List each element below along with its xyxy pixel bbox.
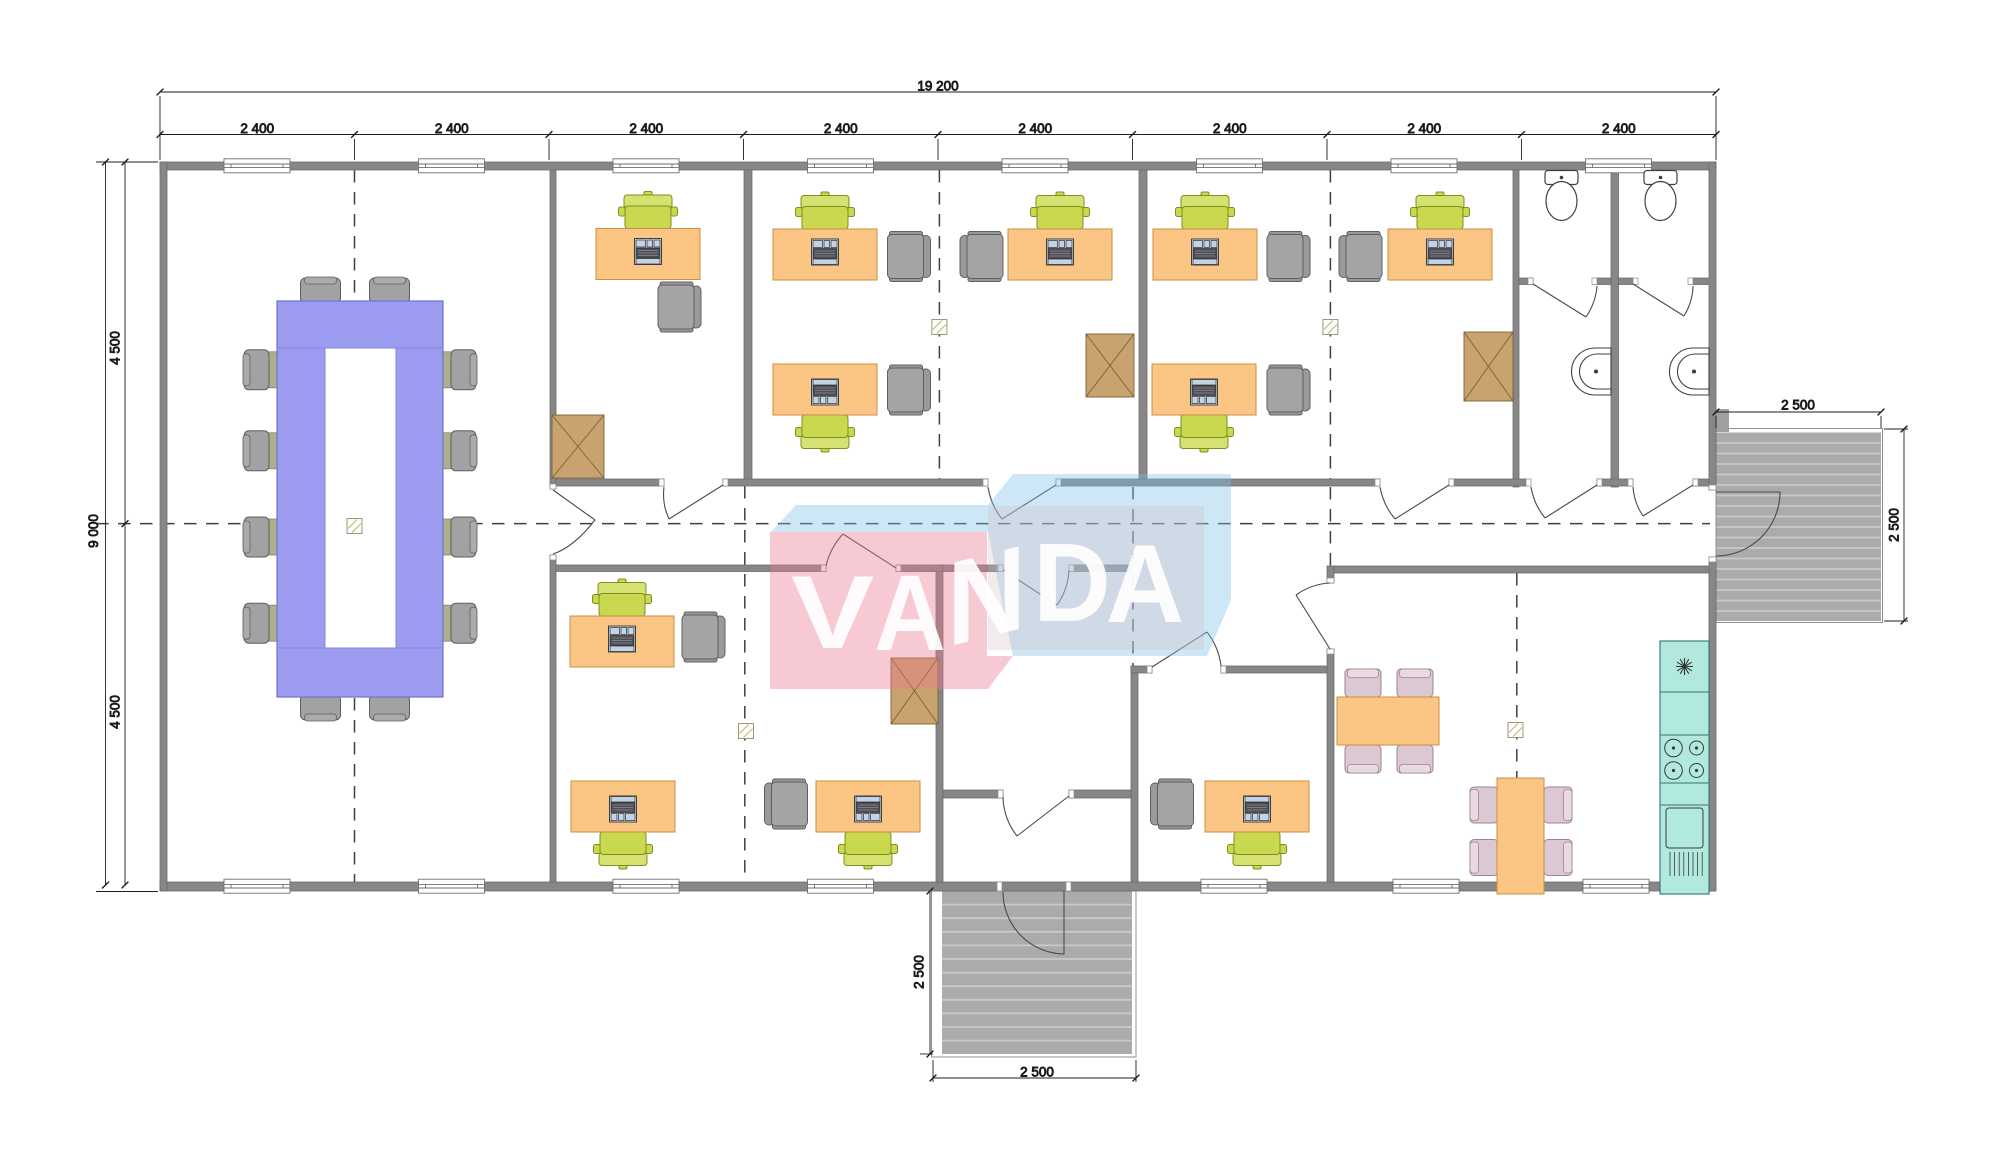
svg-text:2 500: 2 500 [1781, 398, 1815, 413]
svg-text:4 500: 4 500 [108, 695, 123, 729]
svg-text:2 400: 2 400 [629, 121, 663, 136]
svg-text:2 500: 2 500 [912, 955, 927, 989]
svg-text:2 400: 2 400 [240, 121, 274, 136]
svg-text:4 500: 4 500 [108, 331, 123, 365]
svg-text:A: A [874, 552, 946, 673]
svg-text:2 400: 2 400 [435, 121, 469, 136]
svg-text:2 400: 2 400 [1213, 121, 1247, 136]
svg-text:9 000: 9 000 [86, 514, 101, 548]
svg-text:A: A [1106, 523, 1185, 646]
svg-text:V: V [791, 555, 874, 671]
svg-text:N: N [947, 519, 1026, 673]
svg-text:19 200: 19 200 [917, 79, 958, 94]
svg-text:2 500: 2 500 [1887, 508, 1902, 542]
svg-text:2 400: 2 400 [1018, 121, 1052, 136]
svg-text:2 500: 2 500 [1020, 1064, 1054, 1079]
svg-text:2 400: 2 400 [824, 121, 858, 136]
svg-text:D: D [1033, 522, 1111, 646]
svg-text:2 400: 2 400 [1407, 121, 1441, 136]
svg-text:2 400: 2 400 [1602, 121, 1636, 136]
